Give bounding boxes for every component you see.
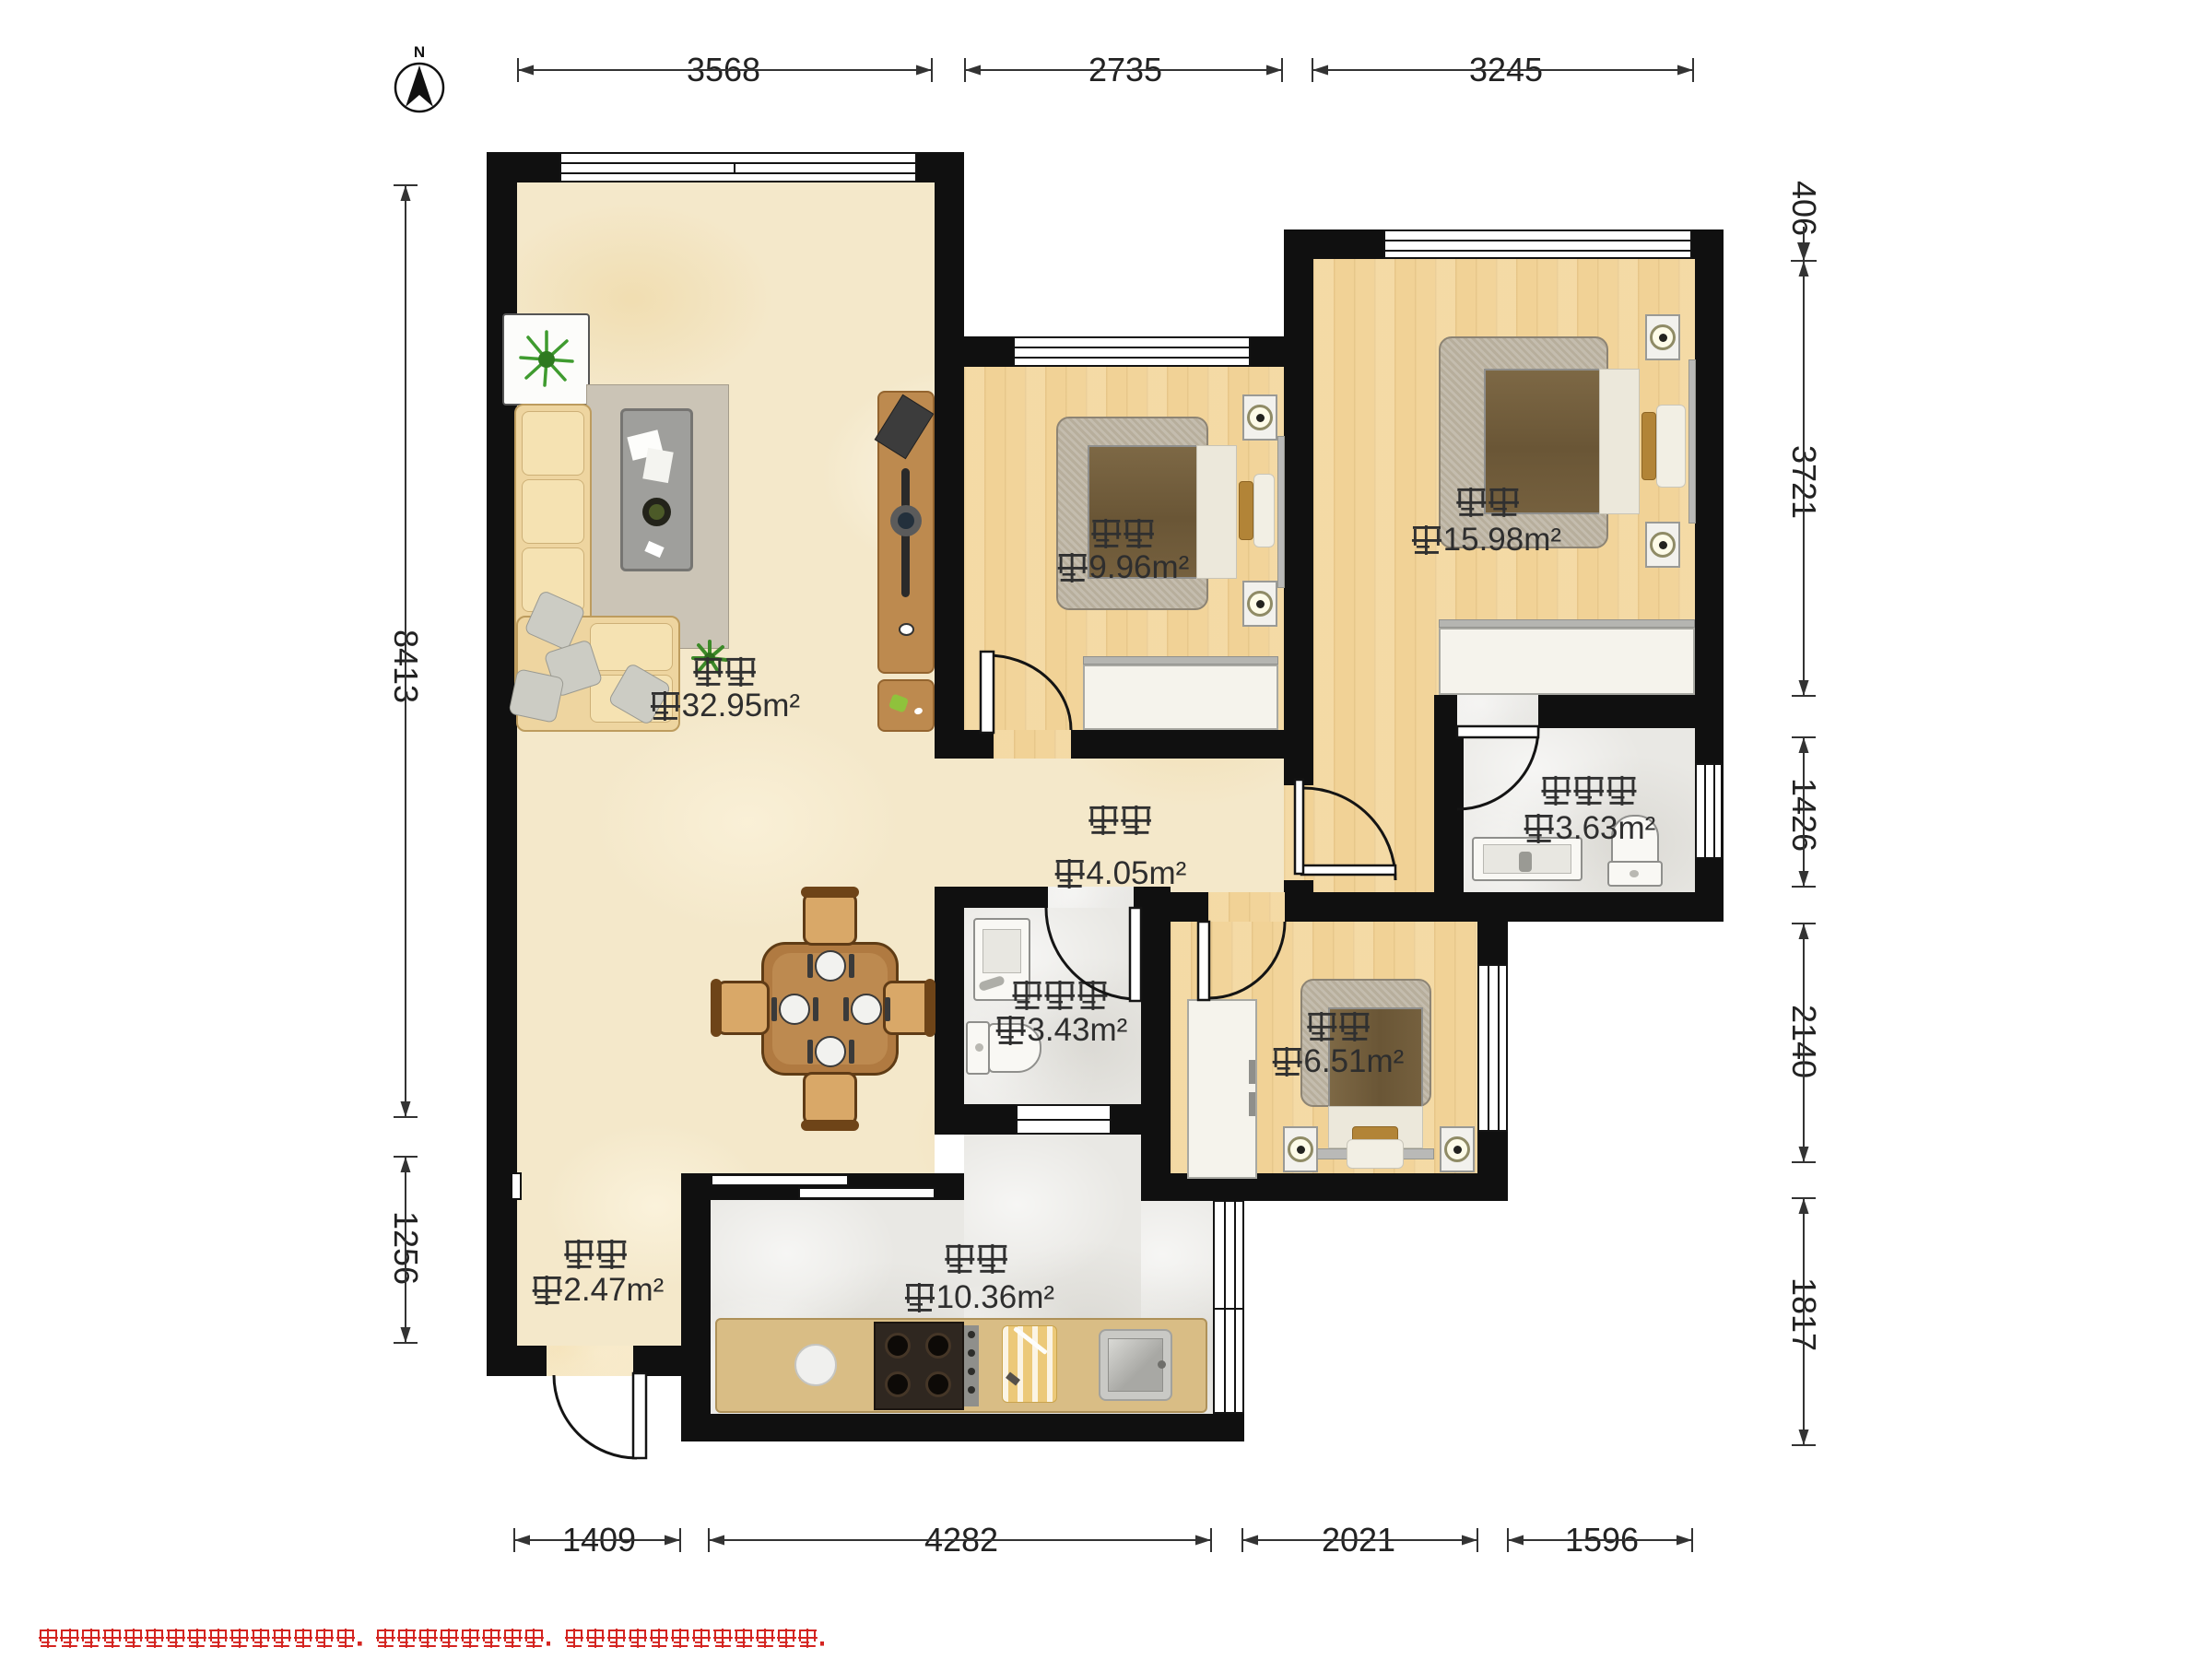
svg-text:N: N <box>414 43 425 61</box>
